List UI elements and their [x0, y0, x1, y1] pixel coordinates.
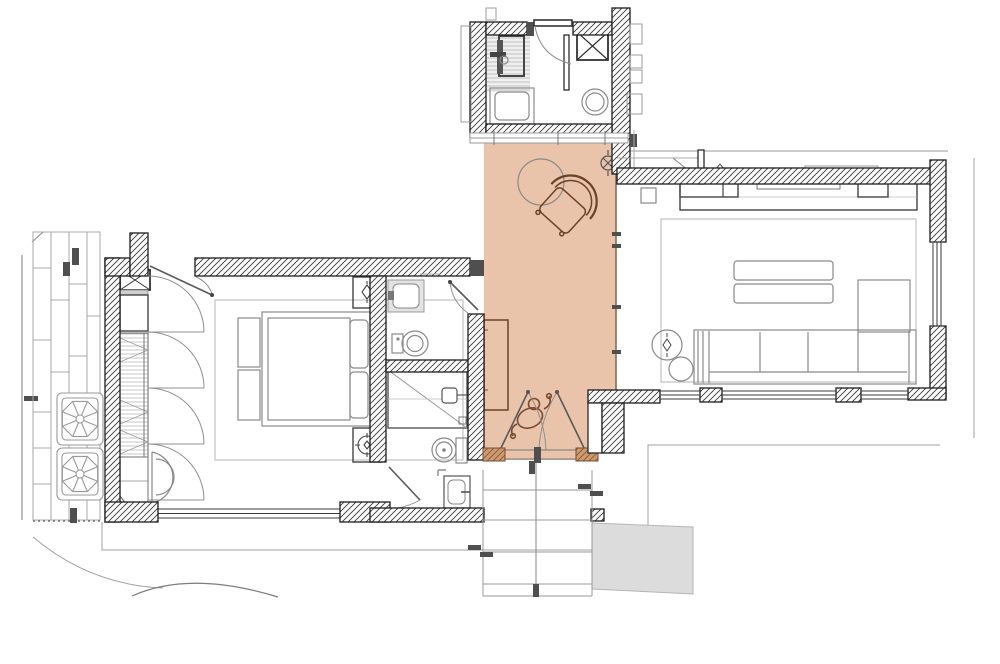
wardrobe	[120, 270, 204, 505]
bidet	[392, 331, 428, 356]
pillow	[350, 372, 368, 418]
toilet	[432, 438, 467, 463]
entry-step-band	[470, 131, 628, 145]
bench	[238, 318, 260, 367]
living-window-right	[931, 242, 943, 326]
ac-unit-1	[57, 393, 103, 445]
side-tables	[652, 330, 693, 381]
tv	[757, 184, 840, 189]
floor-box	[641, 188, 656, 203]
wardrobe-doors	[148, 276, 204, 500]
master-washbasin	[438, 470, 470, 508]
entry-stairs	[468, 463, 603, 597]
washbasin	[393, 284, 419, 308]
ac-unit-2	[57, 448, 103, 500]
floor-plan-canvas	[0, 0, 1000, 664]
bedroom	[105, 233, 484, 522]
bedroom-rug	[215, 300, 463, 460]
master-bath-door	[389, 467, 420, 509]
ground-curve-2	[132, 583, 278, 597]
pillow	[350, 320, 368, 368]
living-room	[588, 130, 946, 521]
shower-mixer	[442, 388, 457, 403]
floor-plan-drawing	[0, 0, 1000, 664]
threshold	[483, 448, 505, 461]
counter-basin	[495, 92, 529, 120]
walk-in-shower	[388, 370, 467, 428]
gray-ramp	[592, 523, 693, 594]
master-bathroom	[388, 370, 470, 516]
mattress	[268, 318, 350, 420]
marker	[24, 396, 38, 401]
ground-mark	[32, 232, 43, 242]
guest-bathroom	[388, 274, 478, 356]
bedroom-window	[158, 507, 340, 520]
reading-chair	[152, 452, 174, 503]
sofa	[694, 280, 916, 384]
threshold-marker	[534, 447, 541, 463]
door-jamb	[527, 22, 534, 36]
coffee-tables	[734, 261, 833, 303]
lamp-symbol	[663, 333, 671, 357]
sideboard	[680, 183, 917, 210]
bench	[238, 370, 260, 420]
living-window-bottom	[660, 391, 908, 399]
bed-frame	[262, 312, 370, 426]
ground-curve-1	[33, 537, 163, 588]
ac-units	[57, 393, 103, 500]
chaise	[858, 280, 910, 332]
living-rug	[661, 219, 916, 382]
bed	[238, 312, 370, 426]
boiler-inner	[586, 93, 604, 111]
wardrobe-drawers	[120, 295, 148, 331]
faucet	[388, 291, 394, 300]
door-jamb	[470, 260, 484, 276]
terrace-outline-left	[102, 522, 592, 550]
